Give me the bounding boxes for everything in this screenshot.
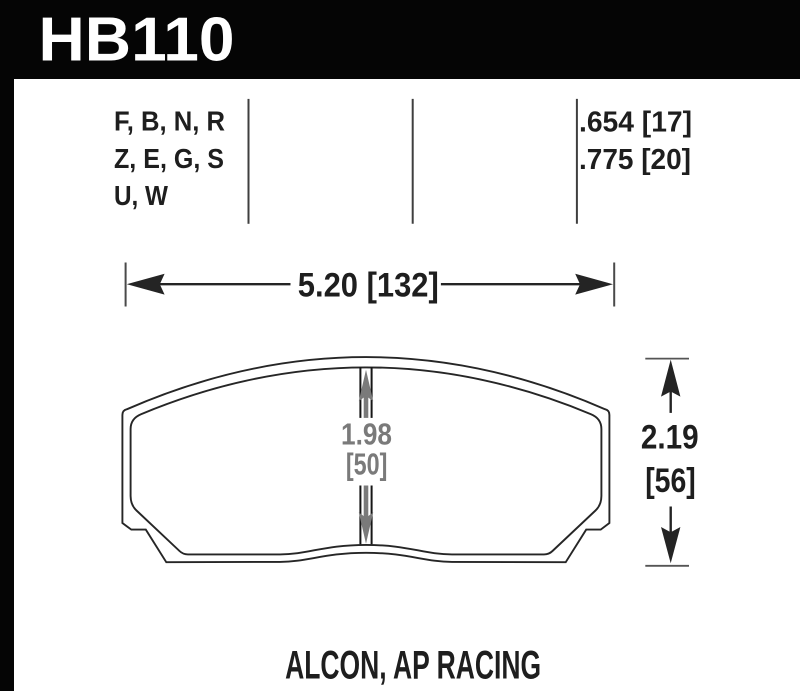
svg-text:2.19: 2.19: [641, 418, 699, 456]
svg-text:F, B, N, R: F, B, N, R: [114, 105, 225, 136]
svg-text:.775 [20]: .775 [20]: [579, 144, 691, 176]
svg-text:HB110: HB110: [39, 6, 235, 75]
svg-text:U, W: U, W: [114, 180, 168, 211]
svg-text:ALCON, AP RACING: ALCON, AP RACING: [285, 643, 541, 687]
svg-text:[50]: [50]: [346, 448, 388, 482]
svg-text:Z, E, G, S: Z, E, G, S: [114, 143, 224, 174]
svg-text:.654 [17]: .654 [17]: [579, 107, 692, 139]
svg-text:1.98: 1.98: [341, 418, 392, 452]
svg-text:5.20 [132]: 5.20 [132]: [298, 267, 439, 305]
svg-text:[56]: [56]: [645, 462, 696, 500]
